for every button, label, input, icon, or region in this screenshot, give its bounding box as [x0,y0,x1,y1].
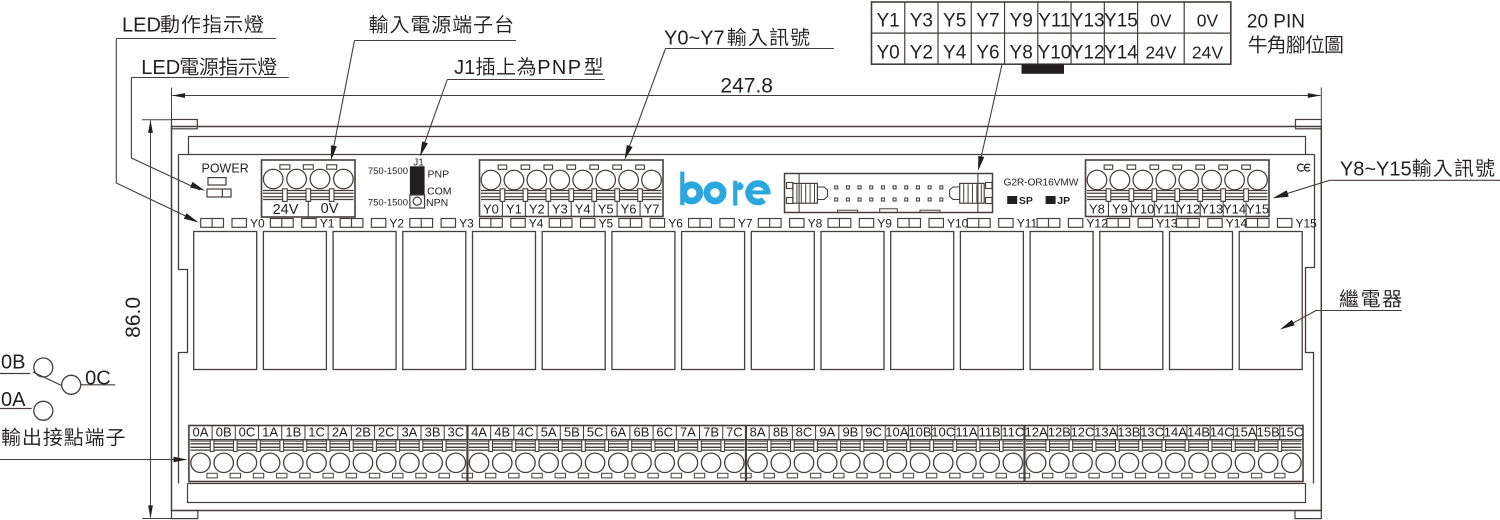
svg-text:750-1500: 750-1500 [368,198,408,209]
svg-text:POWER: POWER [202,161,249,175]
svg-text:Y4: Y4 [943,42,967,63]
svg-text:10C: 10C [931,425,955,440]
svg-text:Y9: Y9 [1010,11,1033,32]
svg-text:Y8~Y15: Y8~Y15 [1340,158,1412,180]
svg-text:6A: 6A [610,425,626,440]
svg-text:12B: 12B [1048,425,1071,440]
svg-text:13B: 13B [1117,425,1140,440]
svg-text:Y14: Y14 [1223,201,1246,216]
svg-text:PNP: PNP [537,57,582,79]
svg-text:0C: 0C [85,367,111,389]
svg-text:Y1: Y1 [506,201,522,216]
svg-text:Y3: Y3 [552,201,568,216]
svg-text:Y13: Y13 [1200,201,1223,216]
svg-text:24V: 24V [273,202,299,218]
svg-text:Y9: Y9 [877,216,892,230]
svg-text:Y10: Y10 [947,216,969,230]
svg-text:Y7: Y7 [644,201,660,216]
svg-text:15A: 15A [1233,425,1256,440]
svg-text:4C: 4C [517,425,534,440]
svg-text:Y4: Y4 [575,201,591,216]
svg-text:9A: 9A [819,425,835,440]
svg-text:Y5: Y5 [599,216,614,230]
svg-text:3A: 3A [401,425,417,440]
svg-text:Y7: Y7 [976,11,999,32]
svg-text:Y8: Y8 [1089,201,1105,216]
svg-text:Y0: Y0 [250,216,265,230]
svg-text:2A: 2A [332,425,348,440]
svg-text:24V: 24V [1145,42,1176,62]
svg-text:1A: 1A [262,425,278,440]
svg-text:247.8: 247.8 [720,75,773,98]
svg-text:5A: 5A [541,425,557,440]
svg-text:5B: 5B [564,425,580,440]
svg-text:Y0: Y0 [483,201,499,216]
svg-text:8B: 8B [773,425,789,440]
svg-text:J1: J1 [454,57,475,79]
svg-text:86.0: 86.0 [122,297,145,338]
svg-text:20 PIN: 20 PIN [1247,11,1305,32]
svg-text:Y2: Y2 [389,216,404,230]
svg-text:Y1: Y1 [320,216,335,230]
svg-text:Y14: Y14 [1226,216,1248,230]
svg-text:10B: 10B [908,425,931,440]
svg-text:8A: 8A [750,425,766,440]
svg-text:0C: 0C [239,425,256,440]
svg-text:24V: 24V [1192,42,1223,62]
svg-text:LED: LED [122,15,161,37]
svg-text:Y2: Y2 [910,42,933,63]
svg-text:Y15: Y15 [1104,11,1138,32]
svg-text:14B: 14B [1187,425,1210,440]
svg-text:9C: 9C [865,425,882,440]
svg-text:Y13: Y13 [1156,216,1178,230]
svg-text:Y5: Y5 [943,11,966,32]
svg-text:Y12: Y12 [1071,42,1105,63]
svg-text:Y10: Y10 [1131,201,1154,216]
svg-text:6B: 6B [634,425,650,440]
svg-text:Y8: Y8 [808,216,823,230]
svg-text:9B: 9B [842,425,858,440]
svg-text:4A: 4A [471,425,487,440]
svg-text:Y14: Y14 [1104,42,1138,63]
svg-text:2C: 2C [378,425,395,440]
svg-text:13A: 13A [1094,425,1117,440]
svg-text:Y0: Y0 [877,42,900,63]
svg-text:Y11: Y11 [1038,11,1070,32]
svg-text:0V: 0V [1197,11,1219,31]
svg-text:Y13: Y13 [1071,11,1105,32]
svg-text:11B: 11B [979,425,1001,440]
svg-text:3C: 3C [448,425,465,440]
svg-text:0B: 0B [1,352,25,374]
svg-text:Y15: Y15 [1296,216,1318,230]
svg-text:Y12: Y12 [1177,201,1200,216]
svg-text:7B: 7B [703,425,719,440]
svg-text:Y6: Y6 [668,216,683,230]
svg-text:1C: 1C [308,425,325,440]
svg-text:5C: 5C [587,425,604,440]
svg-text:Y3: Y3 [910,11,933,32]
svg-text:14A: 14A [1164,425,1187,440]
svg-text:6C: 6C [656,425,673,440]
svg-text:Y6: Y6 [621,201,637,216]
svg-text:11C: 11C [1001,425,1024,440]
svg-text:COM: COM [427,186,452,198]
svg-text:14C: 14C [1210,425,1234,440]
svg-text:750-1500: 750-1500 [368,166,408,177]
svg-text:15C: 15C [1279,425,1303,440]
svg-text:0V: 0V [321,201,339,217]
svg-text:13C: 13C [1140,425,1164,440]
svg-text:Y4: Y4 [529,216,544,230]
svg-text:7C: 7C [726,425,743,440]
svg-text:Y15: Y15 [1246,201,1269,216]
svg-text:0A: 0A [1,389,26,411]
svg-text:11A: 11A [955,425,977,440]
svg-text:12A: 12A [1025,425,1048,440]
svg-text:8C: 8C [796,425,813,440]
svg-text:LED: LED [141,57,180,79]
svg-text:Y5: Y5 [598,201,614,216]
svg-text:Y11: Y11 [1017,216,1038,230]
svg-text:Y11: Y11 [1155,201,1177,216]
svg-text:10A: 10A [885,425,908,440]
svg-text:15B: 15B [1257,425,1280,440]
svg-text:Y2: Y2 [529,201,545,216]
svg-text:0V: 0V [1150,11,1172,31]
svg-text:Y3: Y3 [459,216,474,230]
svg-text:Y10: Y10 [1038,42,1072,63]
svg-text:G2R-OR16VMW: G2R-OR16VMW [1004,177,1079,188]
svg-text:Y6: Y6 [976,42,999,63]
svg-text:Y7: Y7 [738,216,753,230]
svg-text:3B: 3B [425,425,441,440]
svg-text:4B: 4B [494,425,510,440]
svg-text:Y9: Y9 [1112,201,1128,216]
svg-text:2B: 2B [355,425,371,440]
svg-text:PNP: PNP [428,169,450,181]
svg-text:Y0~Y7: Y0~Y7 [664,28,725,50]
svg-text:12C: 12C [1071,425,1095,440]
svg-text:0B: 0B [216,425,232,440]
svg-text:1B: 1B [285,425,301,440]
svg-text:7A: 7A [680,425,696,440]
svg-text:Y8: Y8 [1010,42,1033,63]
svg-text:0A: 0A [193,425,209,440]
svg-text:SP: SP [1019,195,1033,207]
svg-text:NPN: NPN [426,197,448,209]
svg-text:JP: JP [1057,195,1070,207]
svg-text:Y1: Y1 [877,11,900,32]
svg-text:Y12: Y12 [1086,216,1108,230]
